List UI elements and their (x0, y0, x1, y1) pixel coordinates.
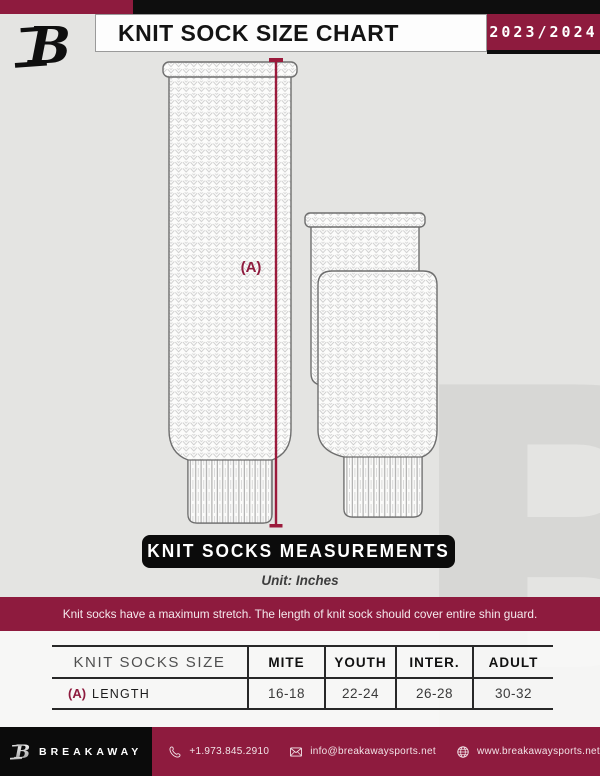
table-header-mite: MITE (247, 647, 324, 677)
length-label: LENGTH (92, 687, 150, 701)
table-cell-length-label: (A) LENGTH (52, 679, 247, 708)
footer-brand-name: BREAKAWAY (39, 746, 142, 758)
season-badge: 2023/2024 (487, 14, 600, 50)
footer-bar: B BREAKAWAY +1.973.845.2910 info@breakaw… (0, 727, 600, 776)
phone-icon (168, 745, 182, 759)
stretch-notice-strip: Knit socks have a maximum stretch. The l… (0, 597, 600, 631)
top-bar (0, 0, 600, 14)
dimension-label-a: (A) (241, 259, 262, 276)
measurements-banner-label: KNIT SOCKS MEASUREMENTS (147, 541, 449, 562)
top-bar-accent (0, 0, 133, 14)
table-row-length: (A) LENGTH 16-18 22-24 26-28 30-32 (52, 679, 553, 708)
sock-small (318, 271, 437, 517)
footer-phone-text: +1.973.845.2910 (189, 746, 269, 757)
footer-breakaway-logo-icon: B (10, 739, 32, 765)
title-box: KNIT SOCK SIZE CHART (95, 14, 487, 52)
table-cell-mite-value: 16-18 (247, 679, 324, 708)
globe-icon (456, 745, 470, 759)
measurements-banner: KNIT SOCKS MEASUREMENTS (142, 535, 455, 568)
sock-large-rib (188, 460, 272, 523)
table-header-inter: INTER. (395, 647, 472, 677)
footer-email-text: info@breakawaysports.net (310, 746, 436, 757)
footer-email: info@breakawaysports.net (289, 745, 436, 759)
knit-sock-size-chart-page: B KNIT SOCK SIZE CHART 2023/2024 B (0, 0, 600, 776)
table-header-youth: YOUTH (324, 647, 395, 677)
envelope-icon (289, 745, 303, 759)
footer-contacts: +1.973.845.2910 info@breakawaysports.net… (152, 727, 600, 776)
breakaway-logo-icon: B (14, 16, 74, 76)
page-title: KNIT SOCK SIZE CHART (118, 20, 399, 47)
stretch-notice-text: Knit socks have a maximum stretch. The l… (60, 607, 540, 622)
sock-small-rib (344, 457, 422, 517)
table-header-row: KNIT SOCKS SIZE MITE YOUTH INTER. ADULT (52, 647, 553, 679)
length-prefix: (A) (68, 686, 86, 701)
size-table: KNIT SOCKS SIZE MITE YOUTH INTER. ADULT … (52, 645, 553, 710)
footer-phone: +1.973.845.2910 (168, 745, 269, 759)
unit-note: Unit: Inches (0, 573, 600, 588)
footer-brand: B BREAKAWAY (0, 727, 152, 776)
table-cell-youth-value: 22-24 (324, 679, 395, 708)
footer-website: www.breakawaysports.net (456, 745, 600, 759)
table-cell-inter-value: 26-28 (395, 679, 472, 708)
season-underbar (487, 50, 600, 54)
table-cell-adult-value: 30-32 (472, 679, 553, 708)
footer-website-text: www.breakawaysports.net (477, 746, 600, 757)
season-label: 2023/2024 (489, 23, 597, 41)
table-header-adult: ADULT (472, 647, 553, 677)
table-header-size: KNIT SOCKS SIZE (52, 647, 247, 677)
